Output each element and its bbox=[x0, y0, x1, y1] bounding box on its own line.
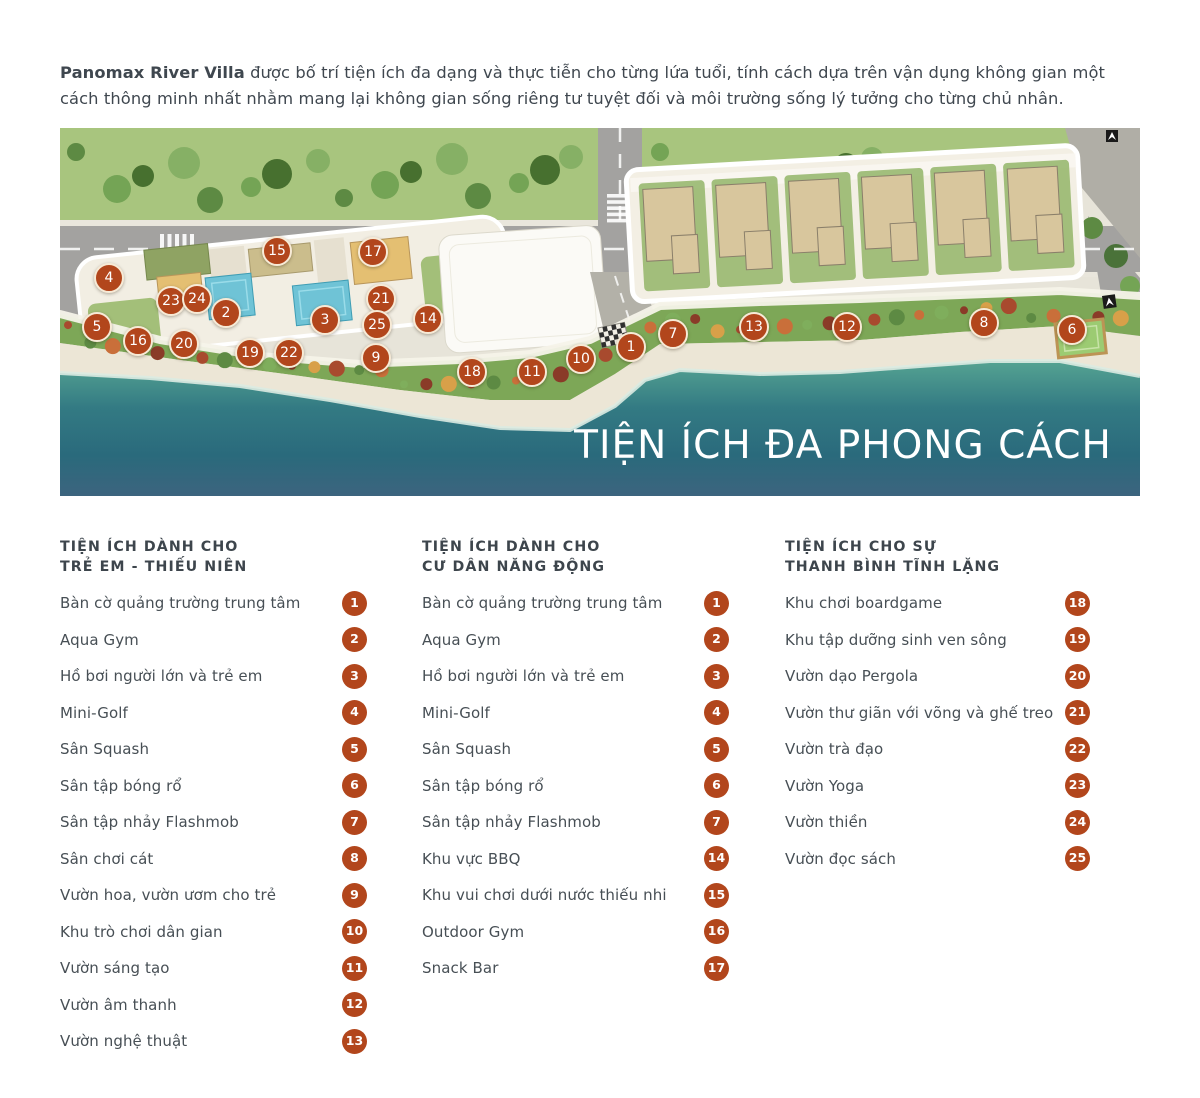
legend-item-label: Mini-Golf bbox=[422, 704, 490, 722]
intro-paragraph: Panomax River Villa được bố trí tiện ích… bbox=[60, 60, 1132, 113]
legend-item-label: Bàn cờ quảng trường trung tâm bbox=[60, 594, 300, 612]
map-marker-25: 25 bbox=[362, 310, 392, 340]
legend-item-label: Hồ bơi người lớn và trẻ em bbox=[422, 667, 624, 685]
legend-item: Aqua Gym2 bbox=[422, 628, 729, 652]
legend-item-badge: 5 bbox=[342, 737, 367, 762]
legend-item-badge: 8 bbox=[342, 846, 367, 871]
legend-item-badge: 4 bbox=[342, 700, 367, 725]
map-marker-20: 20 bbox=[169, 329, 199, 359]
legend-item: Hồ bơi người lớn và trẻ em3 bbox=[60, 664, 367, 688]
legend-item-label: Sân chơi cát bbox=[60, 850, 153, 868]
legend-item: Sân tập nhảy Flashmob7 bbox=[422, 810, 729, 834]
legend-item-label: Vườn sáng tạo bbox=[60, 959, 170, 977]
map-marker-1: 1 bbox=[616, 332, 646, 362]
legend-item-badge: 10 bbox=[342, 919, 367, 944]
legend-item-label: Khu chơi boardgame bbox=[785, 594, 942, 612]
legend-item-label: Khu tập dưỡng sinh ven sông bbox=[785, 631, 1007, 649]
legend-item-badge: 23 bbox=[1065, 773, 1090, 798]
legend-item-badge: 4 bbox=[704, 700, 729, 725]
legend-rows: Bàn cờ quảng trường trung tâm1Aqua Gym2H… bbox=[422, 591, 729, 980]
legend-column-title: TIỆN ÍCH DÀNH CHO CƯ DÂN NĂNG ĐỘNG bbox=[422, 538, 729, 577]
legend-item: Vườn âm thanh12 bbox=[60, 993, 367, 1017]
legend-item-label: Sân Squash bbox=[60, 740, 149, 758]
map-marker-13: 13 bbox=[739, 312, 769, 342]
legend-item: Bàn cờ quảng trường trung tâm1 bbox=[60, 591, 367, 615]
map-marker-6: 6 bbox=[1057, 315, 1087, 345]
legend-item-label: Khu vực BBQ bbox=[422, 850, 521, 868]
legend-item-label: Vườn thư giãn với võng và ghế treo bbox=[785, 704, 1053, 722]
legend-item: Vườn trà đạo22 bbox=[785, 737, 1090, 761]
legend-item: Sân chơi cát8 bbox=[60, 847, 367, 871]
empty-lot bbox=[438, 225, 608, 354]
legend-item: Khu vực BBQ14 bbox=[422, 847, 729, 871]
legend-item-badge: 24 bbox=[1065, 810, 1090, 835]
map-marker-18: 18 bbox=[457, 357, 487, 387]
legend-item-badge: 12 bbox=[342, 992, 367, 1017]
legend-item: Hồ bơi người lớn và trẻ em3 bbox=[422, 664, 729, 688]
legend-item-badge: 25 bbox=[1065, 846, 1090, 871]
map-marker-8: 8 bbox=[969, 308, 999, 338]
map-marker-12: 12 bbox=[832, 312, 862, 342]
legend-column-title: TIỆN ÍCH CHO SỰ THANH BÌNH TĨNH LẶNG bbox=[785, 538, 1090, 577]
legend-item-badge: 15 bbox=[704, 883, 729, 908]
legend-item: Vườn sáng tạo11 bbox=[60, 956, 367, 980]
legend-item: Sân tập bóng rổ6 bbox=[60, 774, 367, 798]
legend-item-badge: 14 bbox=[704, 846, 729, 871]
legend-item-label: Aqua Gym bbox=[60, 631, 139, 649]
legend-item-label: Khu trò chơi dân gian bbox=[60, 923, 223, 941]
tree bbox=[1104, 244, 1128, 268]
map-marker-21: 21 bbox=[366, 284, 396, 314]
legend-item-badge: 7 bbox=[342, 810, 367, 835]
legend-item-badge: 19 bbox=[1065, 627, 1090, 652]
map-marker-14: 14 bbox=[413, 304, 443, 334]
map-marker-7: 7 bbox=[658, 319, 688, 349]
legend-item-label: Vườn trà đạo bbox=[785, 740, 883, 758]
legend-item: Mini-Golf4 bbox=[60, 701, 367, 725]
legend-item-label: Vườn dạo Pergola bbox=[785, 667, 918, 685]
legend-item-badge: 9 bbox=[342, 883, 367, 908]
legend-item-badge: 5 bbox=[704, 737, 729, 762]
legend-item-label: Sân tập nhảy Flashmob bbox=[60, 813, 239, 831]
legend-item-badge: 17 bbox=[704, 956, 729, 981]
legend-item: Sân tập bóng rổ6 bbox=[422, 774, 729, 798]
legend-item-badge: 13 bbox=[342, 1029, 367, 1054]
map-marker-4: 4 bbox=[94, 263, 124, 293]
legend-item: Mini-Golf4 bbox=[422, 701, 729, 725]
legend-item: Vườn nghệ thuật13 bbox=[60, 1029, 367, 1053]
villa-row bbox=[626, 145, 1085, 302]
legend-column-children: TIỆN ÍCH DÀNH CHO TRẺ EM - THIẾU NIÊN Bà… bbox=[60, 538, 367, 1066]
map-marker-19: 19 bbox=[235, 338, 265, 368]
legend-item-badge: 1 bbox=[704, 591, 729, 616]
project-name: Panomax River Villa bbox=[60, 63, 245, 82]
legend-item: Outdoor Gym16 bbox=[422, 920, 729, 944]
legend-item: Vườn dạo Pergola20 bbox=[785, 664, 1090, 688]
legend-column-tranquil: TIỆN ÍCH CHO SỰ THANH BÌNH TĨNH LẶNG Khu… bbox=[785, 538, 1090, 883]
legend-item-label: Snack Bar bbox=[422, 959, 498, 977]
legend-item-badge: 6 bbox=[342, 773, 367, 798]
legend-column-title: TIỆN ÍCH DÀNH CHO TRẺ EM - THIẾU NIÊN bbox=[60, 538, 367, 577]
legend-item: Vườn đọc sách25 bbox=[785, 847, 1090, 871]
legend-item-label: Bàn cờ quảng trường trung tâm bbox=[422, 594, 662, 612]
legend-item-label: Sân tập bóng rổ bbox=[422, 777, 544, 795]
map-overlay-title: TIỆN ÍCH ĐA PHONG CÁCH bbox=[558, 423, 1128, 468]
legend-item: Sân Squash5 bbox=[422, 737, 729, 761]
legend-item-badge: 6 bbox=[704, 773, 729, 798]
legend-item-label: Vườn đọc sách bbox=[785, 850, 896, 868]
legend-item: Khu vui chơi dưới nước thiếu nhi15 bbox=[422, 883, 729, 907]
map-marker-10: 10 bbox=[566, 344, 596, 374]
map-marker-5: 5 bbox=[82, 312, 112, 342]
legend-item-badge: 7 bbox=[704, 810, 729, 835]
legend-item-badge: 11 bbox=[342, 956, 367, 981]
legend-item-label: Khu vui chơi dưới nước thiếu nhi bbox=[422, 886, 667, 904]
map-marker-17: 17 bbox=[358, 237, 388, 267]
map-marker-3: 3 bbox=[310, 305, 340, 335]
legend-item-badge: 18 bbox=[1065, 591, 1090, 616]
legend-item: Bàn cờ quảng trường trung tâm1 bbox=[422, 591, 729, 615]
legend-item-badge: 2 bbox=[342, 627, 367, 652]
map-marker-16: 16 bbox=[123, 326, 153, 356]
legend-item-badge: 3 bbox=[342, 664, 367, 689]
legend-rows: Bàn cờ quảng trường trung tâm1Aqua Gym2H… bbox=[60, 591, 367, 1053]
legend-item-label: Vườn âm thanh bbox=[60, 996, 177, 1014]
legend-item-badge: 2 bbox=[704, 627, 729, 652]
north-arrow-icon bbox=[1102, 294, 1117, 309]
north-arrow-icon bbox=[1106, 130, 1118, 142]
map-marker-2: 2 bbox=[211, 298, 241, 328]
site-plan-map: 1234567891011121314151617181920212223242… bbox=[60, 128, 1140, 496]
legend-item: Sân Squash5 bbox=[60, 737, 367, 761]
legend-item-label: Vườn nghệ thuật bbox=[60, 1032, 187, 1050]
legend-item-label: Sân Squash bbox=[422, 740, 511, 758]
legend-item: Khu chơi boardgame18 bbox=[785, 591, 1090, 615]
legend-item-badge: 21 bbox=[1065, 700, 1090, 725]
legend-item-label: Aqua Gym bbox=[422, 631, 501, 649]
map-marker-24: 24 bbox=[182, 284, 212, 314]
map-marker-11: 11 bbox=[517, 357, 547, 387]
legend-item-label: Sân tập nhảy Flashmob bbox=[422, 813, 601, 831]
legend-item-label: Mini-Golf bbox=[60, 704, 128, 722]
legend-column-active: TIỆN ÍCH DÀNH CHO CƯ DÂN NĂNG ĐỘNG Bàn c… bbox=[422, 538, 729, 993]
legend-item-label: Vườn hoa, vườn ươm cho trẻ bbox=[60, 886, 276, 904]
legend-item-label: Outdoor Gym bbox=[422, 923, 524, 941]
legend-item: Snack Bar17 bbox=[422, 956, 729, 980]
legend-item: Aqua Gym2 bbox=[60, 628, 367, 652]
legend-item: Vườn thiền24 bbox=[785, 810, 1090, 834]
legend-item-badge: 3 bbox=[704, 664, 729, 689]
legend-item-badge: 22 bbox=[1065, 737, 1090, 762]
legend-item-label: Hồ bơi người lớn và trẻ em bbox=[60, 667, 262, 685]
legend-item: Khu trò chơi dân gian10 bbox=[60, 920, 367, 944]
legend-item-badge: 1 bbox=[342, 591, 367, 616]
legend-item-label: Sân tập bóng rổ bbox=[60, 777, 182, 795]
map-marker-9: 9 bbox=[361, 343, 391, 373]
legend-item: Vườn hoa, vườn ươm cho trẻ9 bbox=[60, 883, 367, 907]
legend-item: Sân tập nhảy Flashmob7 bbox=[60, 810, 367, 834]
legend-item: Vườn thư giãn với võng và ghế treo21 bbox=[785, 701, 1090, 725]
map-marker-22: 22 bbox=[274, 338, 304, 368]
legend-item: Khu tập dưỡng sinh ven sông19 bbox=[785, 628, 1090, 652]
legend-item: Vườn Yoga23 bbox=[785, 774, 1090, 798]
legend-rows: Khu chơi boardgame18Khu tập dưỡng sinh v… bbox=[785, 591, 1090, 871]
legend-item-label: Vườn thiền bbox=[785, 813, 868, 831]
legend-item-badge: 20 bbox=[1065, 664, 1090, 689]
map-marker-15: 15 bbox=[262, 236, 292, 266]
legend-item-badge: 16 bbox=[704, 919, 729, 944]
legend-item-label: Vườn Yoga bbox=[785, 777, 864, 795]
